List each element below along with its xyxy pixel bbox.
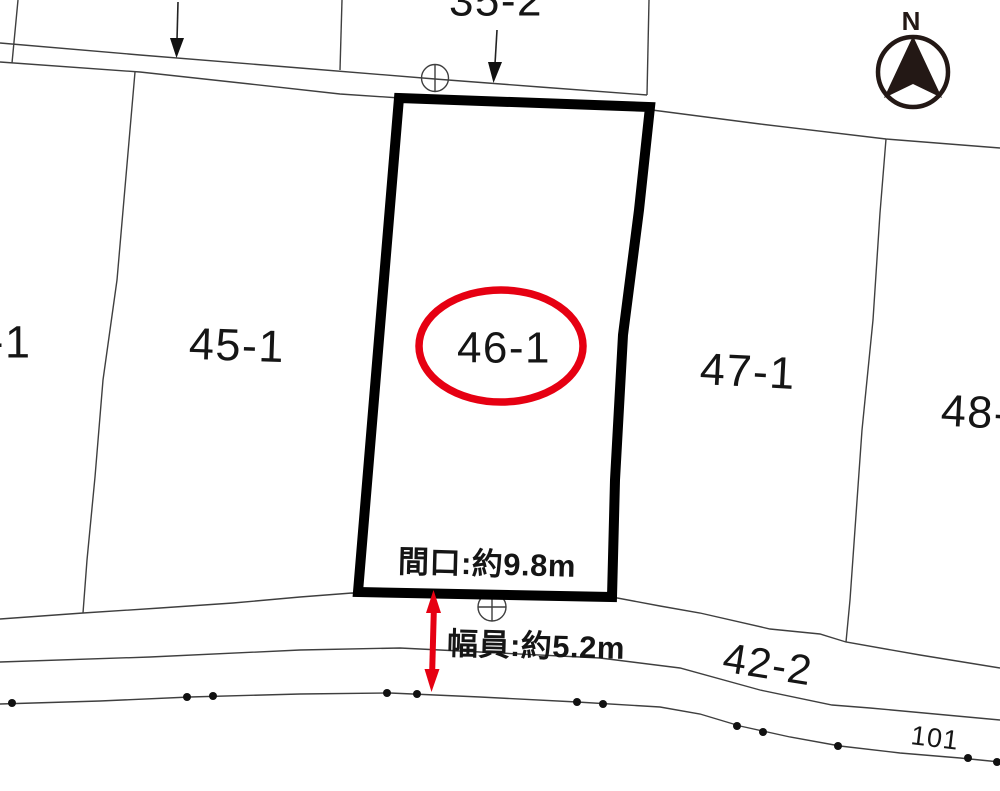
boundary-pointer-arrow-left (170, 2, 184, 58)
survey-dot (964, 754, 972, 762)
boundary-top-left (12, 0, 18, 63)
survey-dot (8, 699, 16, 707)
arrow-head (170, 38, 184, 58)
boundary-45-left (83, 72, 135, 613)
arrow-stem (495, 30, 497, 64)
cadastral-map: N -1 45-1 46-1 47-1 48- 35-2 42-2 101 間口… (0, 0, 1000, 791)
boundary-pointer-arrow-mid (488, 30, 502, 83)
arrow-stem (177, 2, 178, 40)
parcel-label-47-1: 47-1 (699, 343, 798, 399)
surveyed-point-line (0, 693, 1000, 762)
survey-dot (834, 742, 842, 750)
parcel-label-48-partial: 48- (940, 385, 1000, 440)
parcel-label-left-partial: -1 (0, 317, 32, 368)
parcel-label-35-2: 35-2 (449, 0, 543, 26)
parcel-label-45-1: 45-1 (188, 318, 286, 372)
arrow-head (488, 62, 502, 83)
survey-dot (383, 689, 391, 697)
parcel-label-42-2: 42-2 (720, 634, 816, 695)
north-compass: N (878, 6, 948, 107)
boundary-top-right (647, 0, 649, 95)
boundary-47-48 (846, 139, 886, 642)
survey-dot (599, 700, 607, 708)
arrow-shaft (432, 604, 434, 678)
survey-dot (733, 722, 741, 730)
road-width-measurement-label: 幅員:約5.2m (447, 626, 626, 666)
compass-north-label: N (902, 6, 921, 36)
road-width-arrow (425, 590, 442, 692)
boundary-top-mid (340, 0, 342, 70)
cadastral-map-canvas: N -1 45-1 46-1 47-1 48- 35-2 42-2 101 間口… (0, 0, 1000, 791)
parcel-label-46-1: 46-1 (457, 324, 551, 373)
survey-dot (759, 728, 767, 736)
road-point-label-101: 101 (909, 720, 960, 756)
survey-dot (183, 693, 191, 701)
survey-dot (993, 758, 1000, 766)
arrow-head-down (425, 669, 440, 692)
survey-dot (413, 690, 421, 698)
survey-dot (573, 698, 581, 706)
survey-dot (209, 692, 217, 700)
survey-point-dots (8, 689, 1000, 766)
frontage-measurement-label: 間口:約9.8m (398, 544, 577, 584)
